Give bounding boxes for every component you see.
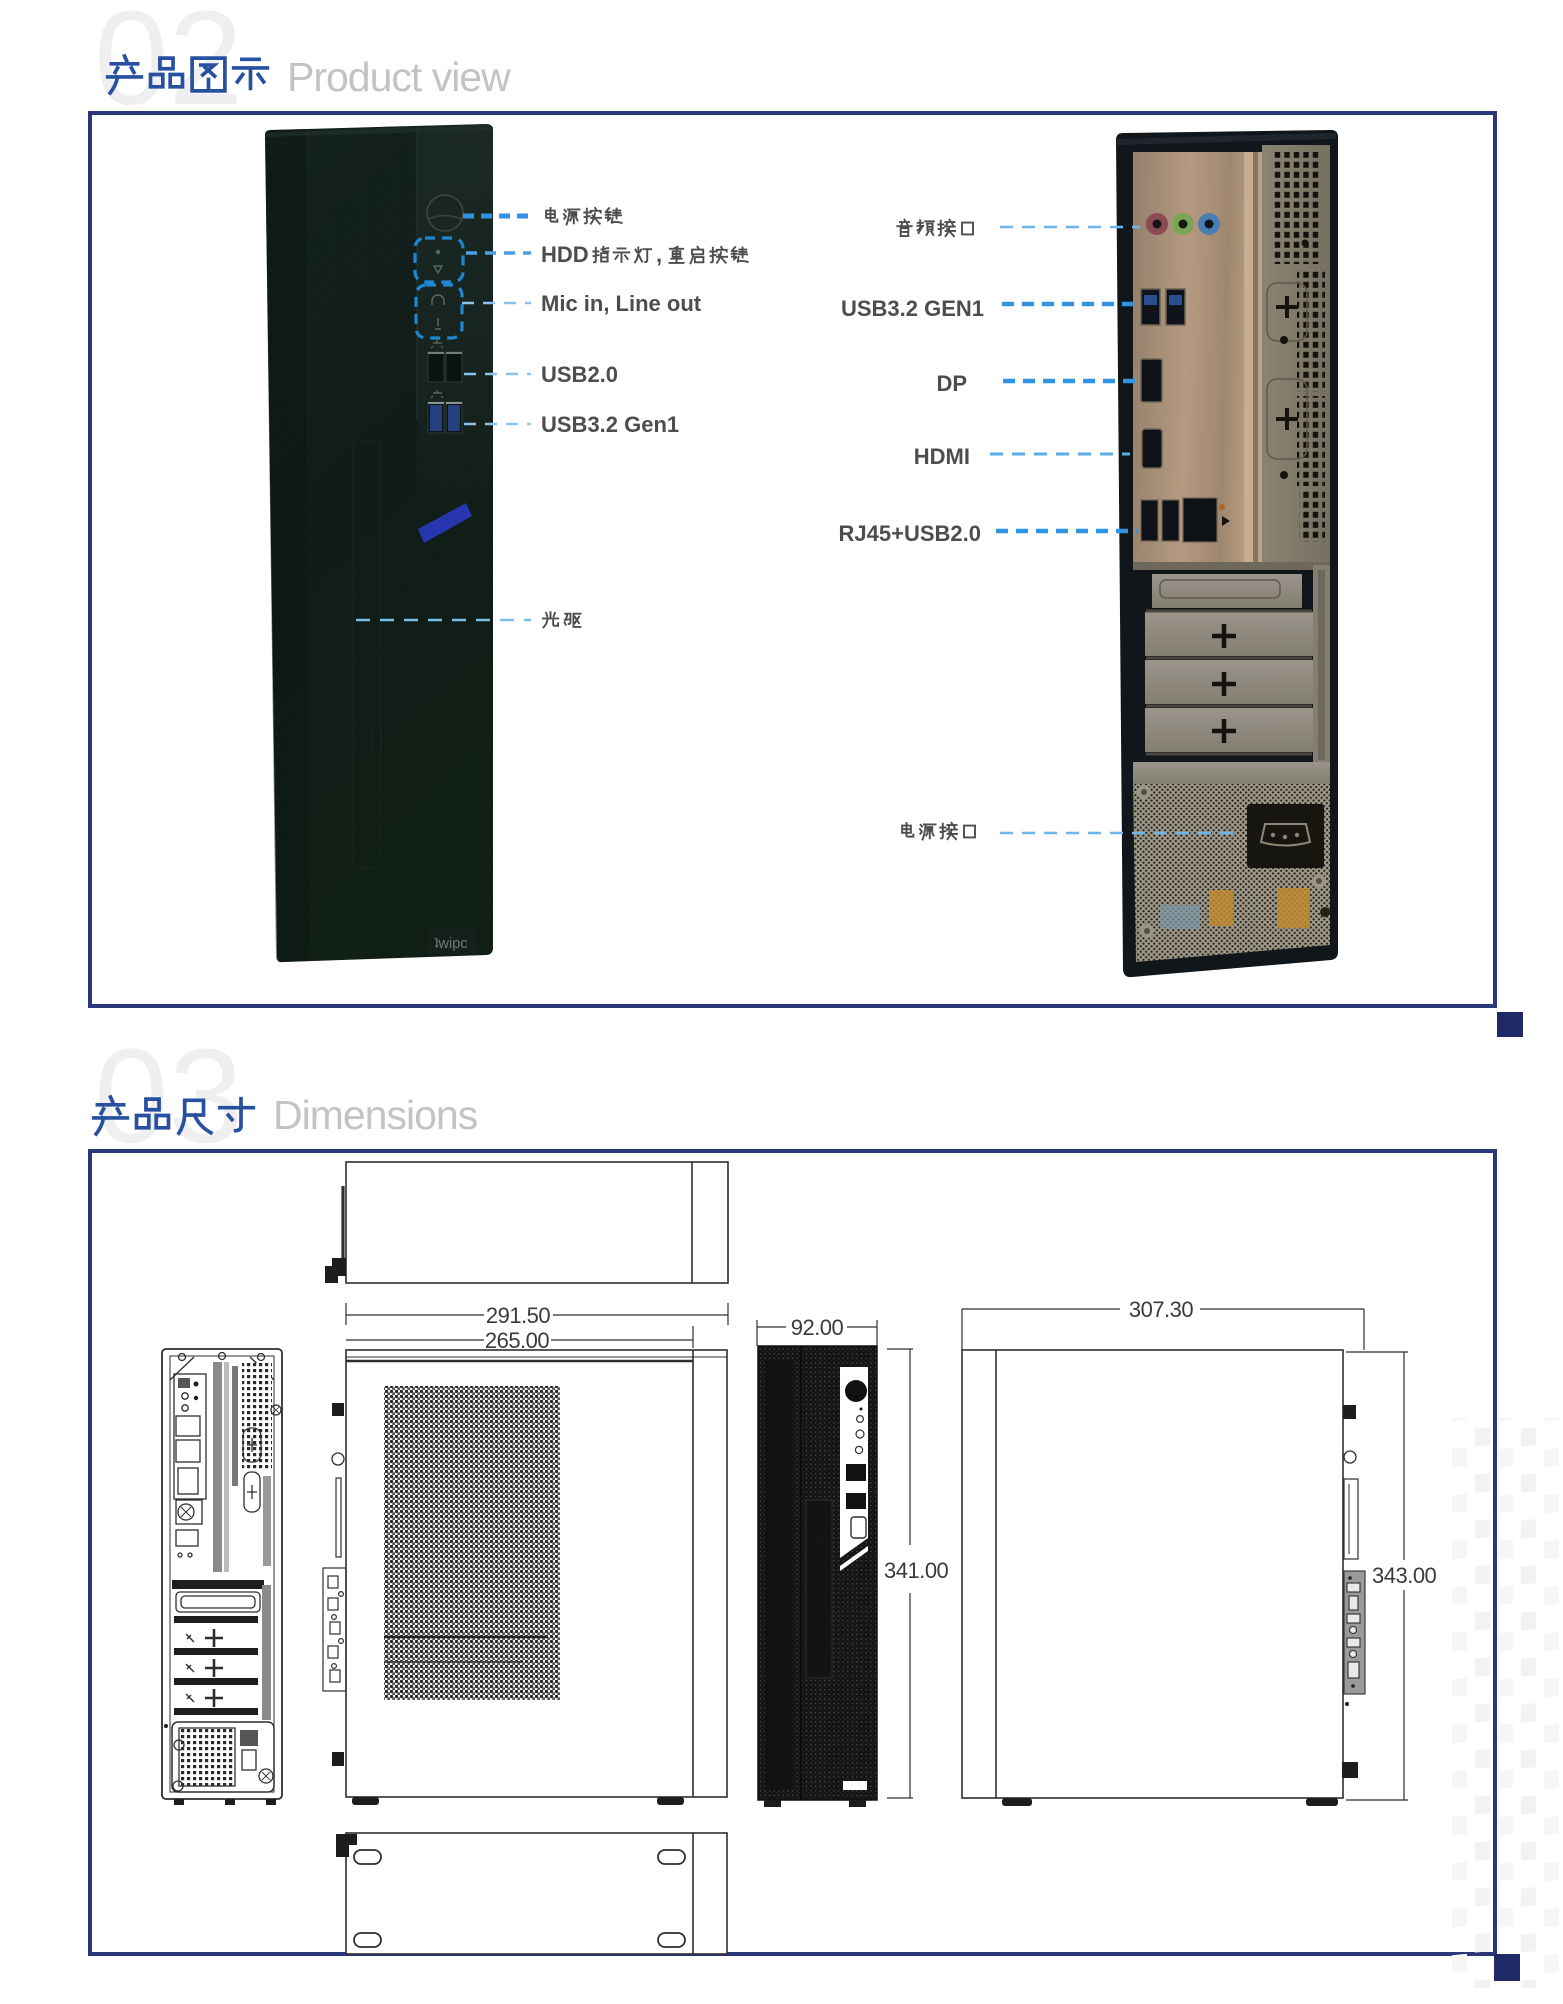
svg-text:Dimensions: Dimensions	[273, 1092, 478, 1138]
svg-text:ʇwipc: ʇwipc	[434, 936, 467, 952]
svg-text:92.00: 92.00	[791, 1315, 844, 1340]
svg-text:Mic in, Line out: Mic in, Line out	[541, 291, 702, 316]
svg-text:03: 03	[94, 1022, 243, 1171]
svg-text:307.30: 307.30	[1129, 1297, 1194, 1322]
svg-text:,: ,	[656, 242, 662, 267]
svg-text:291.50: 291.50	[486, 1303, 551, 1328]
svg-text:DP: DP	[936, 371, 967, 396]
svg-text:Product view: Product view	[287, 54, 511, 100]
svg-text:343.00: 343.00	[1372, 1563, 1437, 1588]
svg-text:USB3.2 GEN1: USB3.2 GEN1	[841, 296, 984, 321]
svg-text:341.00: 341.00	[884, 1558, 949, 1583]
svg-text:USB2.0: USB2.0	[541, 362, 618, 387]
svg-text:USB3.2 Gen1: USB3.2 Gen1	[541, 412, 679, 437]
svg-text:HDD: HDD	[541, 242, 589, 267]
svg-text:RJ45+USB2.0: RJ45+USB2.0	[839, 521, 981, 546]
svg-text:HDMI: HDMI	[914, 444, 970, 469]
